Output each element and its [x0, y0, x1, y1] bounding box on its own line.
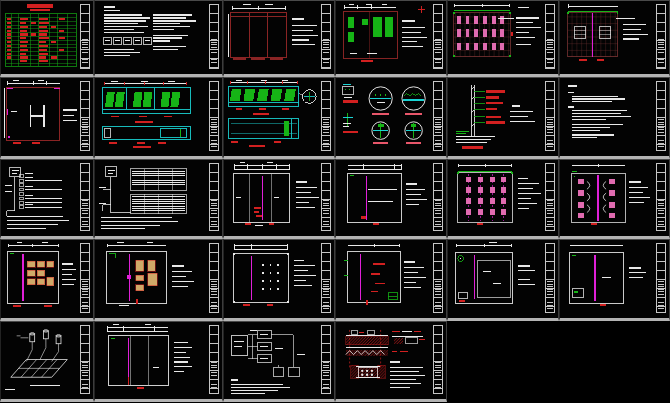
green-edge-line [454, 10, 510, 11]
ceiling-fixture-a-art [450, 162, 544, 232]
title-block-strip [656, 4, 666, 69]
red-fixture-cluster [254, 207, 262, 218]
magenta-accents [7, 88, 60, 139]
sheet-thumbnail-ceiling-fixture-a[interactable] [447, 159, 559, 239]
green-angle [109, 254, 116, 258]
green-tick [572, 255, 577, 256]
sheet-thumbnail-green-fixture-plan[interactable] [335, 0, 447, 77]
bottom-left-green [574, 291, 578, 293]
title-block-strip [656, 163, 666, 231]
annotation-text [63, 109, 77, 121]
plan-outline [570, 253, 624, 304]
node-details-art [338, 80, 432, 152]
wall-column [471, 85, 474, 137]
title-block-strip [80, 81, 90, 151]
strip-dim-text [392, 351, 408, 352]
title-block-strip [433, 163, 443, 231]
section-line [360, 254, 361, 301]
bottom-label [119, 305, 129, 306]
room-plan-detail-art [3, 80, 79, 152]
pipe-cylinders [30, 330, 61, 344]
light-dots [262, 264, 279, 289]
riser-line [7, 177, 15, 217]
layer-labels [486, 90, 505, 124]
partition-a-art [226, 162, 320, 232]
right-cluster [392, 331, 425, 344]
sheet-thumbnail-final-plan[interactable] [94, 321, 223, 402]
door-frame [231, 13, 286, 58]
annotation-text [623, 18, 648, 40]
annotation-text [296, 181, 319, 207]
source-box [10, 168, 21, 177]
title-block-strip [545, 81, 555, 151]
branch-rows [20, 173, 63, 209]
left-detail-upper [343, 84, 359, 103]
annotation-text [518, 265, 535, 285]
bottom-marks [591, 223, 597, 225]
title-block-strip [545, 4, 555, 69]
dimension-lines [454, 4, 530, 8]
riser-b-art [97, 162, 208, 232]
title-block-strip [433, 325, 443, 394]
bottom-fixture [351, 365, 386, 378]
title-block-strip [209, 163, 219, 231]
annotation-text [629, 181, 650, 202]
spec-notes-art [562, 80, 655, 152]
sheet-thumbnail-storefront-b[interactable] [223, 77, 335, 159]
green-fixtures [348, 17, 394, 42]
inner-marks [135, 354, 160, 369]
spec-text [456, 136, 495, 143]
red-tick [511, 32, 513, 36]
sheet-thumbnail-annotated-plan[interactable] [335, 239, 447, 321]
dimension-lines [570, 244, 624, 247]
sheet-thumbnail-room-layout-b[interactable] [559, 239, 670, 321]
storefront-a-art [97, 80, 208, 152]
title-block-strip [321, 243, 331, 313]
sheet-thumbnail-riser-b[interactable] [94, 159, 223, 239]
note-paragraph [231, 379, 290, 394]
note-paragraph [7, 216, 69, 229]
bottom-mark [137, 387, 144, 389]
section-line [128, 338, 129, 377]
title-block-strip [321, 4, 331, 69]
section-line [251, 256, 252, 301]
glass-panels [105, 92, 180, 108]
bottom-marks [373, 223, 379, 225]
title-block-strip [656, 81, 666, 151]
sheet-thumbnail-room-layout-a[interactable] [447, 239, 559, 321]
title-block-strip [545, 243, 555, 313]
green-tick [350, 175, 355, 176]
section-line [262, 176, 263, 221]
bottom-left-mark [459, 300, 465, 301]
section-line [127, 254, 131, 302]
ceiling-grid-a-art [450, 3, 544, 70]
lower-dim-text [109, 142, 166, 148]
title-block-strip [80, 243, 90, 313]
wire-labels [250, 330, 305, 361]
dimension-lines [228, 4, 286, 57]
lower-dim-text [231, 141, 281, 147]
device-boxes [258, 331, 299, 376]
glass-panels [230, 89, 296, 101]
left-labels [5, 185, 12, 192]
lighting-layout-art [226, 242, 320, 314]
dimension-lines [572, 164, 626, 167]
bottom-left-detail [573, 289, 584, 298]
sheet-thumbnail-ceiling-fixture-b[interactable] [559, 159, 670, 239]
title-block-strip [209, 4, 219, 69]
sheet-thumbnail-room-plan-detail[interactable] [0, 77, 94, 159]
sheet-thumbnail-furniture-a[interactable] [0, 239, 94, 321]
sheet-labels [13, 142, 40, 144]
dimension-lines [234, 162, 290, 170]
dimension-lines [234, 244, 288, 251]
bottom-marks [243, 304, 273, 306]
sheet-labels [579, 59, 604, 61]
sheet-thumbnail-drawing-list[interactable] [0, 0, 94, 77]
annotation-text [294, 260, 316, 286]
section-line [366, 176, 367, 221]
annotation-text [516, 17, 541, 45]
riser-line [103, 177, 131, 213]
room-layout-a-art [450, 242, 544, 314]
furniture-blocks [136, 260, 158, 290]
annotation-text [174, 342, 192, 373]
section-line-red-end [128, 377, 130, 385]
source-box-text [12, 170, 19, 174]
title-block-strip [80, 4, 90, 69]
plan-outline [348, 252, 400, 303]
inner-labels [483, 271, 501, 284]
sheet-thumbnail-spec-notes[interactable] [559, 77, 670, 159]
inner-tick [11, 111, 17, 112]
section-band [594, 255, 596, 302]
sheet-thumbnail-door-elevation[interactable] [223, 0, 335, 77]
section-band [597, 175, 599, 222]
plan-outline [234, 254, 288, 303]
dimension-lines [344, 4, 397, 9]
sheet-thumbnail-partition-a[interactable] [223, 159, 335, 239]
wall-section-art [450, 80, 544, 152]
lower-elevation-frame [103, 127, 190, 140]
lamp-fixtures [578, 179, 614, 219]
leader-line [498, 18, 514, 19]
door-sills [233, 58, 283, 60]
sheet-thumbnail-axonometric[interactable] [0, 321, 94, 402]
dimension-lines [348, 164, 402, 171]
plan-outline [109, 336, 168, 385]
annotated-plan-art [338, 242, 432, 314]
partition-b-art [338, 162, 432, 232]
title-block-strip [545, 163, 555, 231]
north-cross-marker [418, 6, 425, 13]
sheet-thumbnail-system-diagram[interactable] [223, 321, 335, 402]
ceiling-grid-b-art [562, 3, 655, 70]
inner-lines [368, 189, 397, 202]
main-unit-text [234, 341, 245, 347]
green-tick [10, 253, 14, 254]
title-block-strip [433, 81, 443, 151]
sheet-thumbnail-riser-a[interactable] [0, 159, 94, 239]
sheet-thumbnail-partition-b[interactable] [335, 159, 447, 239]
dimension-lines [568, 4, 618, 7]
dimension-lines [456, 242, 512, 246]
dimension-lines [230, 80, 298, 83]
red-fixture [361, 216, 366, 218]
room-outline [7, 88, 60, 141]
annotation-text [629, 267, 646, 278]
leader-line [616, 18, 624, 19]
storefront-b-art [226, 80, 320, 152]
bottom-left-detail [459, 293, 468, 299]
lower-green-mullion [180, 129, 181, 138]
bottom-marks [477, 223, 483, 225]
annotation-text [406, 183, 427, 204]
ceiling-fixture-b-art [562, 162, 655, 232]
plan-outline [456, 253, 512, 304]
furniture-a-art [3, 242, 79, 314]
sheet-thumbnail-furniture-b[interactable] [94, 239, 223, 321]
sheet-thumbnail-node-details[interactable] [335, 77, 447, 159]
red-tick [366, 300, 368, 305]
bottom-marks [136, 299, 138, 304]
spec-text-green [456, 131, 470, 134]
inner-label [602, 277, 611, 278]
callout-circle [299, 90, 316, 104]
iso-grid [11, 360, 68, 378]
inner-mark [42, 295, 50, 296]
riser-a-art [3, 162, 79, 232]
annotation-text [62, 263, 76, 285]
annotation-text [172, 265, 194, 287]
layer-branches [474, 92, 485, 123]
lower-elevation-left-box [105, 129, 111, 138]
connector-lines [17, 336, 59, 362]
plan-inner-marks [350, 53, 377, 54]
annotation-text [402, 20, 427, 47]
sheet-thumbnail-ceiling-grid-a[interactable] [447, 0, 559, 77]
ground-line [5, 385, 60, 390]
furniture-blocks [27, 261, 53, 285]
top-assembly [346, 331, 389, 348]
title-block-strip [80, 325, 90, 394]
title-block-strip [321, 325, 331, 394]
detail-title-bar [462, 146, 483, 149]
green-circle-mark [458, 256, 464, 262]
note-paragraph [101, 217, 178, 229]
dimension-lines [8, 242, 59, 247]
note-text-lines [568, 85, 631, 139]
system-diagram-art [226, 324, 320, 395]
source-box-text [108, 170, 115, 174]
bottom-mark [600, 304, 606, 306]
green-tick [572, 171, 578, 172]
cad-sheet-collage [0, 0, 670, 403]
sheet-thumbnail-storefront-a[interactable] [94, 77, 223, 159]
section-line [474, 255, 475, 300]
green-edge-line [458, 171, 512, 172]
axonometric-art [3, 324, 79, 395]
green-fixture-plan-art [338, 3, 432, 70]
note-text-lines [104, 6, 196, 56]
furniture-b-art [97, 242, 208, 314]
green-ticks [344, 260, 348, 277]
bottom-label [255, 225, 263, 226]
sheet-label [361, 60, 373, 62]
centerlines [350, 330, 381, 369]
green-detail [388, 293, 397, 300]
title-block-strip [321, 81, 331, 151]
title-block-strip [209, 81, 219, 151]
sheet-thumbnail-general-notes[interactable] [94, 0, 223, 77]
annotation-text [292, 18, 318, 45]
sheet-thumbnail-ceiling-grid-b[interactable] [559, 0, 670, 77]
red-annotations [371, 263, 386, 292]
circle-interiors [370, 94, 424, 139]
title-block-strip [321, 163, 331, 231]
sheet-thumbnail-wall-section[interactable] [447, 77, 559, 159]
lower-green-strip [284, 121, 289, 137]
dimension-lines [104, 81, 187, 84]
sheet-thumbnail-mounting-detail[interactable] [335, 321, 447, 402]
room-layout-b-art [562, 242, 655, 314]
upper-dim-text [236, 108, 289, 114]
annotation-text [510, 105, 535, 122]
sheet-title-bar [27, 4, 52, 11]
title-block-strip [433, 243, 443, 313]
plan-outline [348, 174, 402, 223]
notes-art [97, 3, 208, 70]
corner-dot [574, 176, 576, 178]
annotation-text [518, 178, 541, 209]
sheet-thumbnail-lighting-layout[interactable] [223, 239, 335, 321]
inner-ticks [236, 197, 280, 198]
bottom-marks [13, 305, 52, 307]
final-plan-art [97, 324, 208, 395]
dimension-lines [107, 242, 166, 247]
annotation-text [390, 361, 425, 388]
corner-squares [233, 253, 289, 304]
lamp-runs [469, 174, 504, 222]
green-tick [111, 338, 115, 339]
green-edge-line [568, 11, 618, 12]
lamp-fixtures [466, 177, 506, 215]
dimension-lines [107, 324, 168, 332]
drawing-list-art [3, 3, 79, 70]
section-line [592, 13, 593, 57]
left-labels [99, 187, 106, 204]
left-detail-lower [343, 113, 359, 133]
dimension-lines [458, 164, 512, 167]
title-block-strip [80, 163, 90, 231]
annotation-text [404, 261, 426, 287]
dimension-lines [348, 244, 400, 247]
title-block-strip [656, 243, 666, 313]
title-block-strip [433, 4, 443, 69]
door-elevation-art [226, 3, 320, 70]
source-box [106, 167, 117, 177]
section-symbol [30, 105, 44, 126]
mounting-detail-art [338, 324, 432, 395]
upper-dim-text [111, 116, 172, 123]
title-block-strip [209, 325, 219, 394]
title-block-strip [209, 243, 219, 313]
section-line [22, 254, 23, 302]
